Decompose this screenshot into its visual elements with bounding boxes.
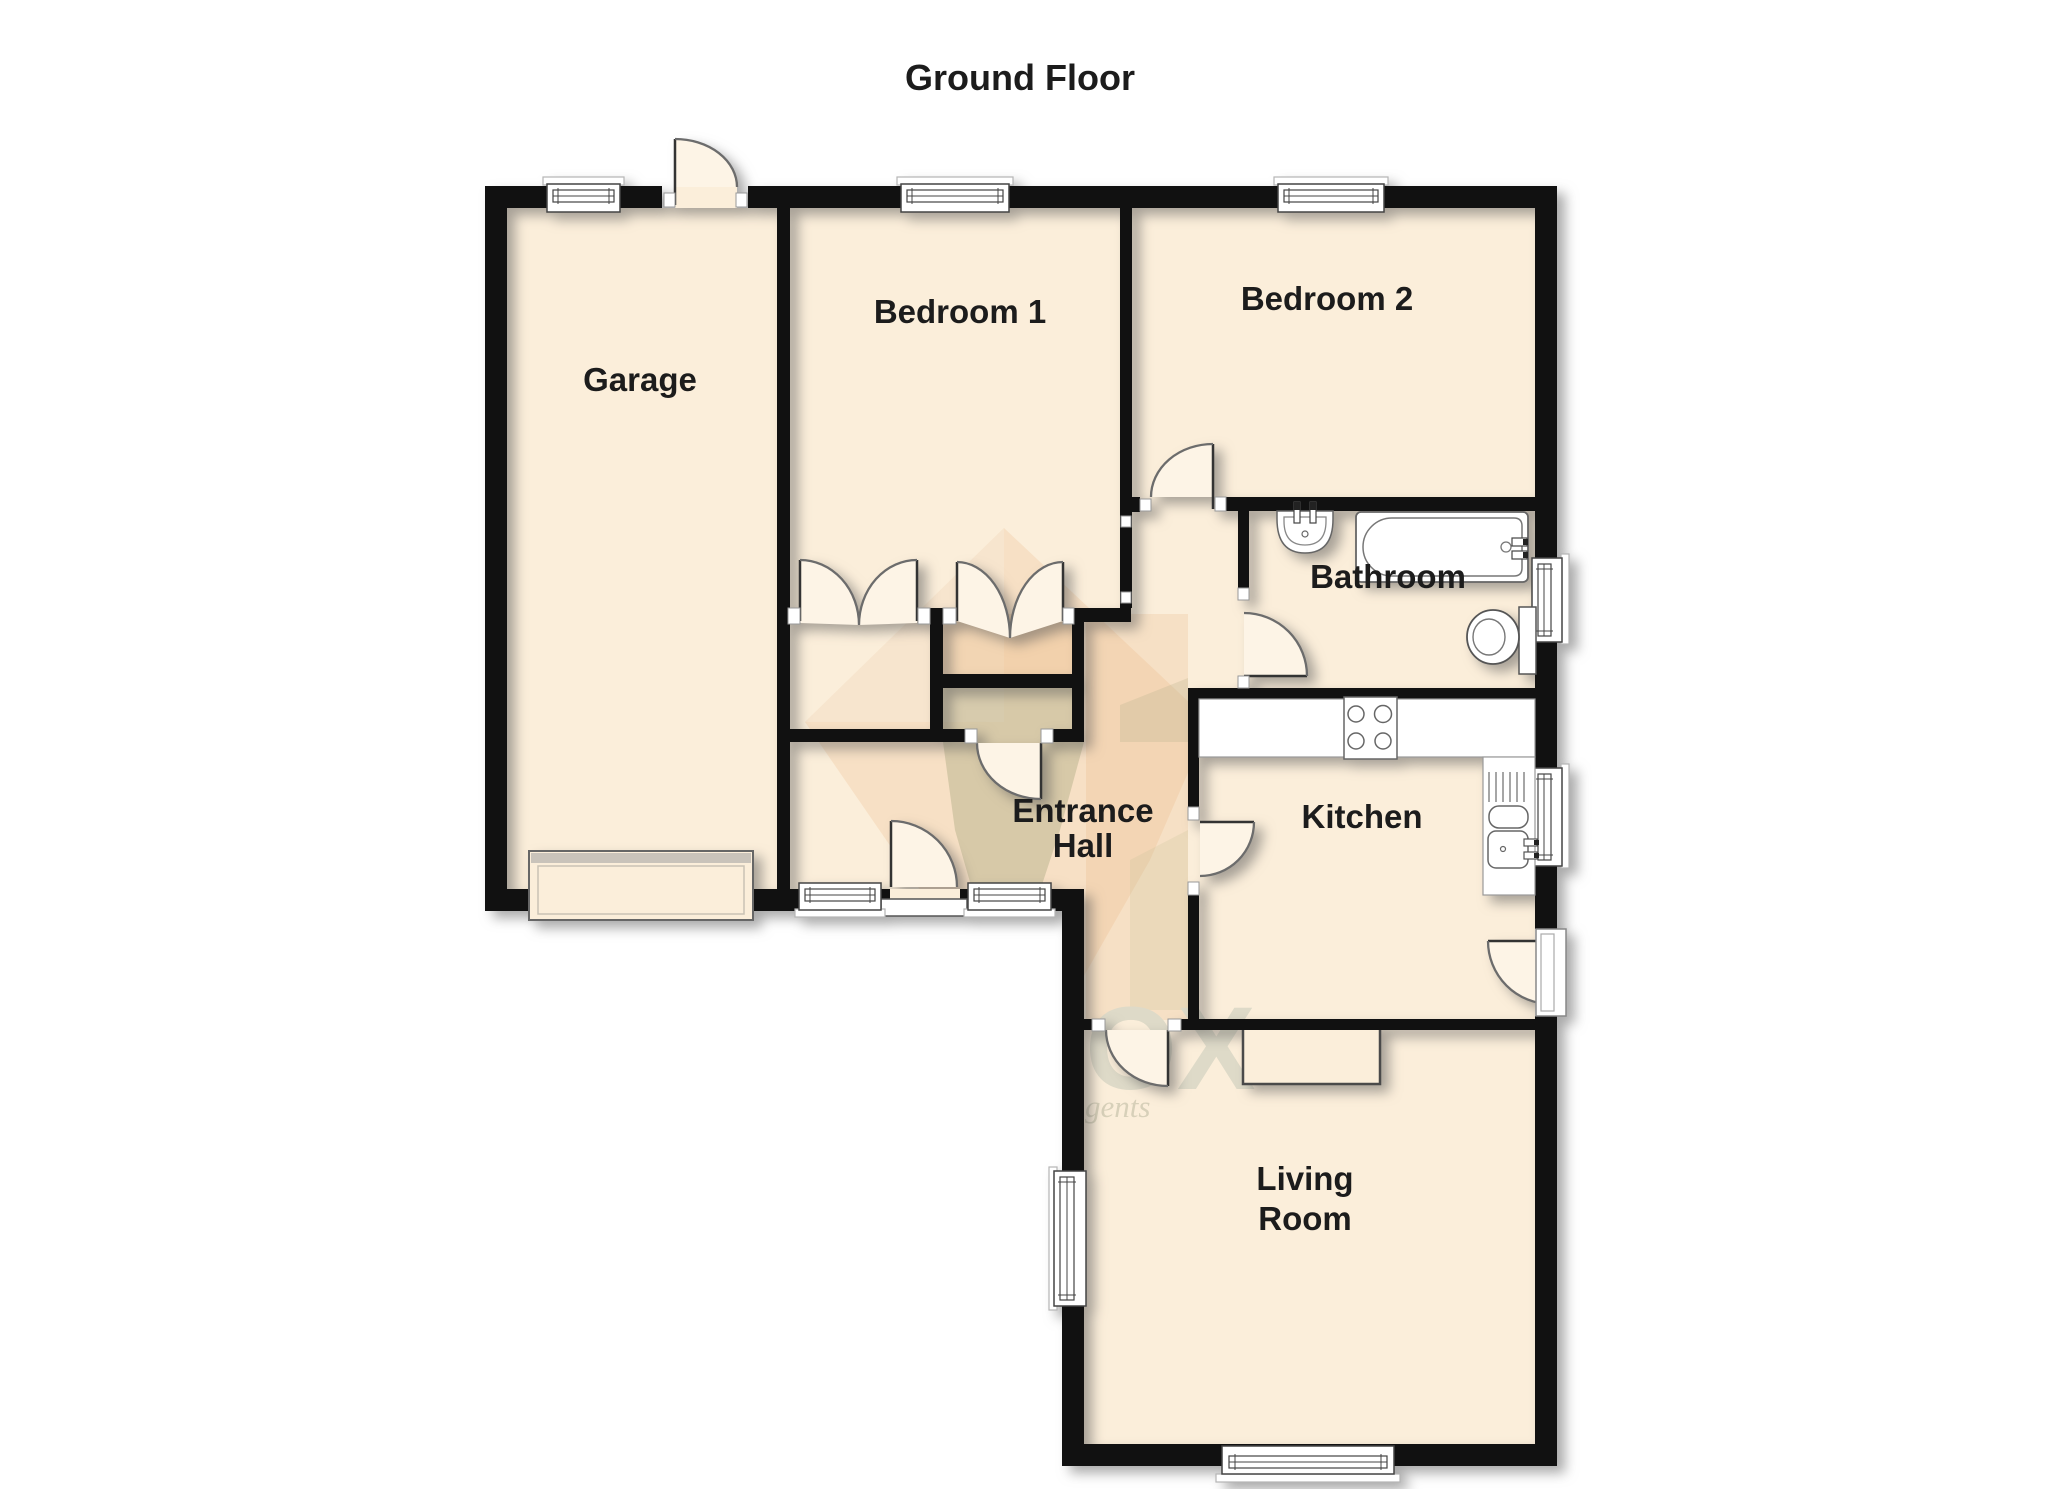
svg-text:Bedroom 2: Bedroom 2 (1241, 280, 1413, 317)
svg-text:Living: Living (1256, 1160, 1353, 1197)
svg-text:Hall: Hall (1053, 827, 1114, 864)
svg-text:Garage: Garage (583, 361, 697, 398)
svg-text:Entrance: Entrance (1012, 792, 1153, 829)
svg-text:Room: Room (1258, 1200, 1352, 1237)
svg-text:Kitchen: Kitchen (1301, 798, 1422, 835)
svg-text:gents: gents (1085, 1089, 1150, 1124)
svg-text:Bathroom: Bathroom (1310, 558, 1466, 595)
svg-text:Bedroom 1: Bedroom 1 (874, 293, 1046, 330)
svg-text:Ground Floor: Ground Floor (905, 57, 1135, 98)
